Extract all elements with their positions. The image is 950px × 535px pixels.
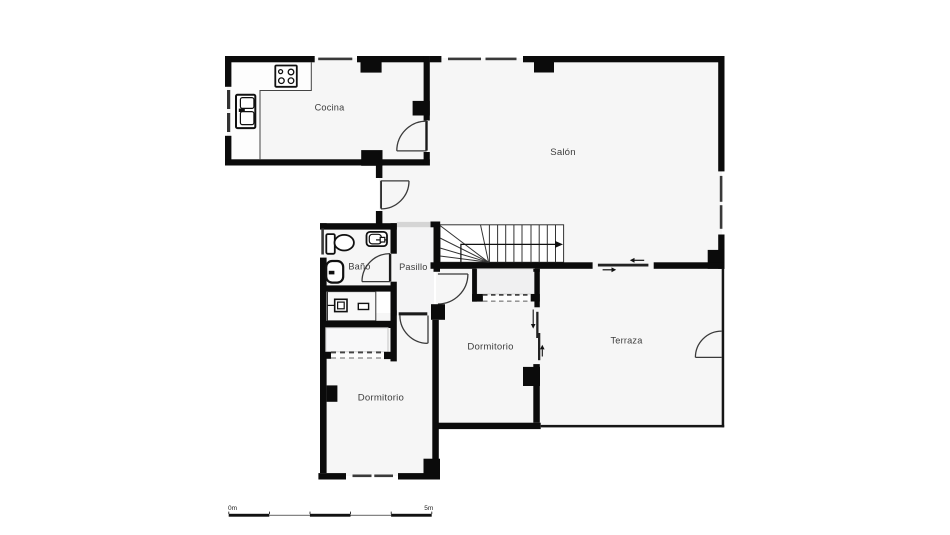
svg-text:0m: 0m	[228, 505, 237, 512]
svg-text:Salón: Salón	[550, 147, 576, 158]
svg-text:Dormitorio: Dormitorio	[467, 341, 513, 352]
svg-text:Cocina: Cocina	[315, 102, 345, 112]
svg-text:Dormitorio: Dormitorio	[358, 393, 404, 404]
svg-text:Baño: Baño	[348, 261, 370, 271]
svg-text:Terraza: Terraza	[610, 336, 643, 346]
svg-text:5m: 5m	[424, 505, 433, 512]
svg-text:Pasillo: Pasillo	[399, 262, 427, 272]
